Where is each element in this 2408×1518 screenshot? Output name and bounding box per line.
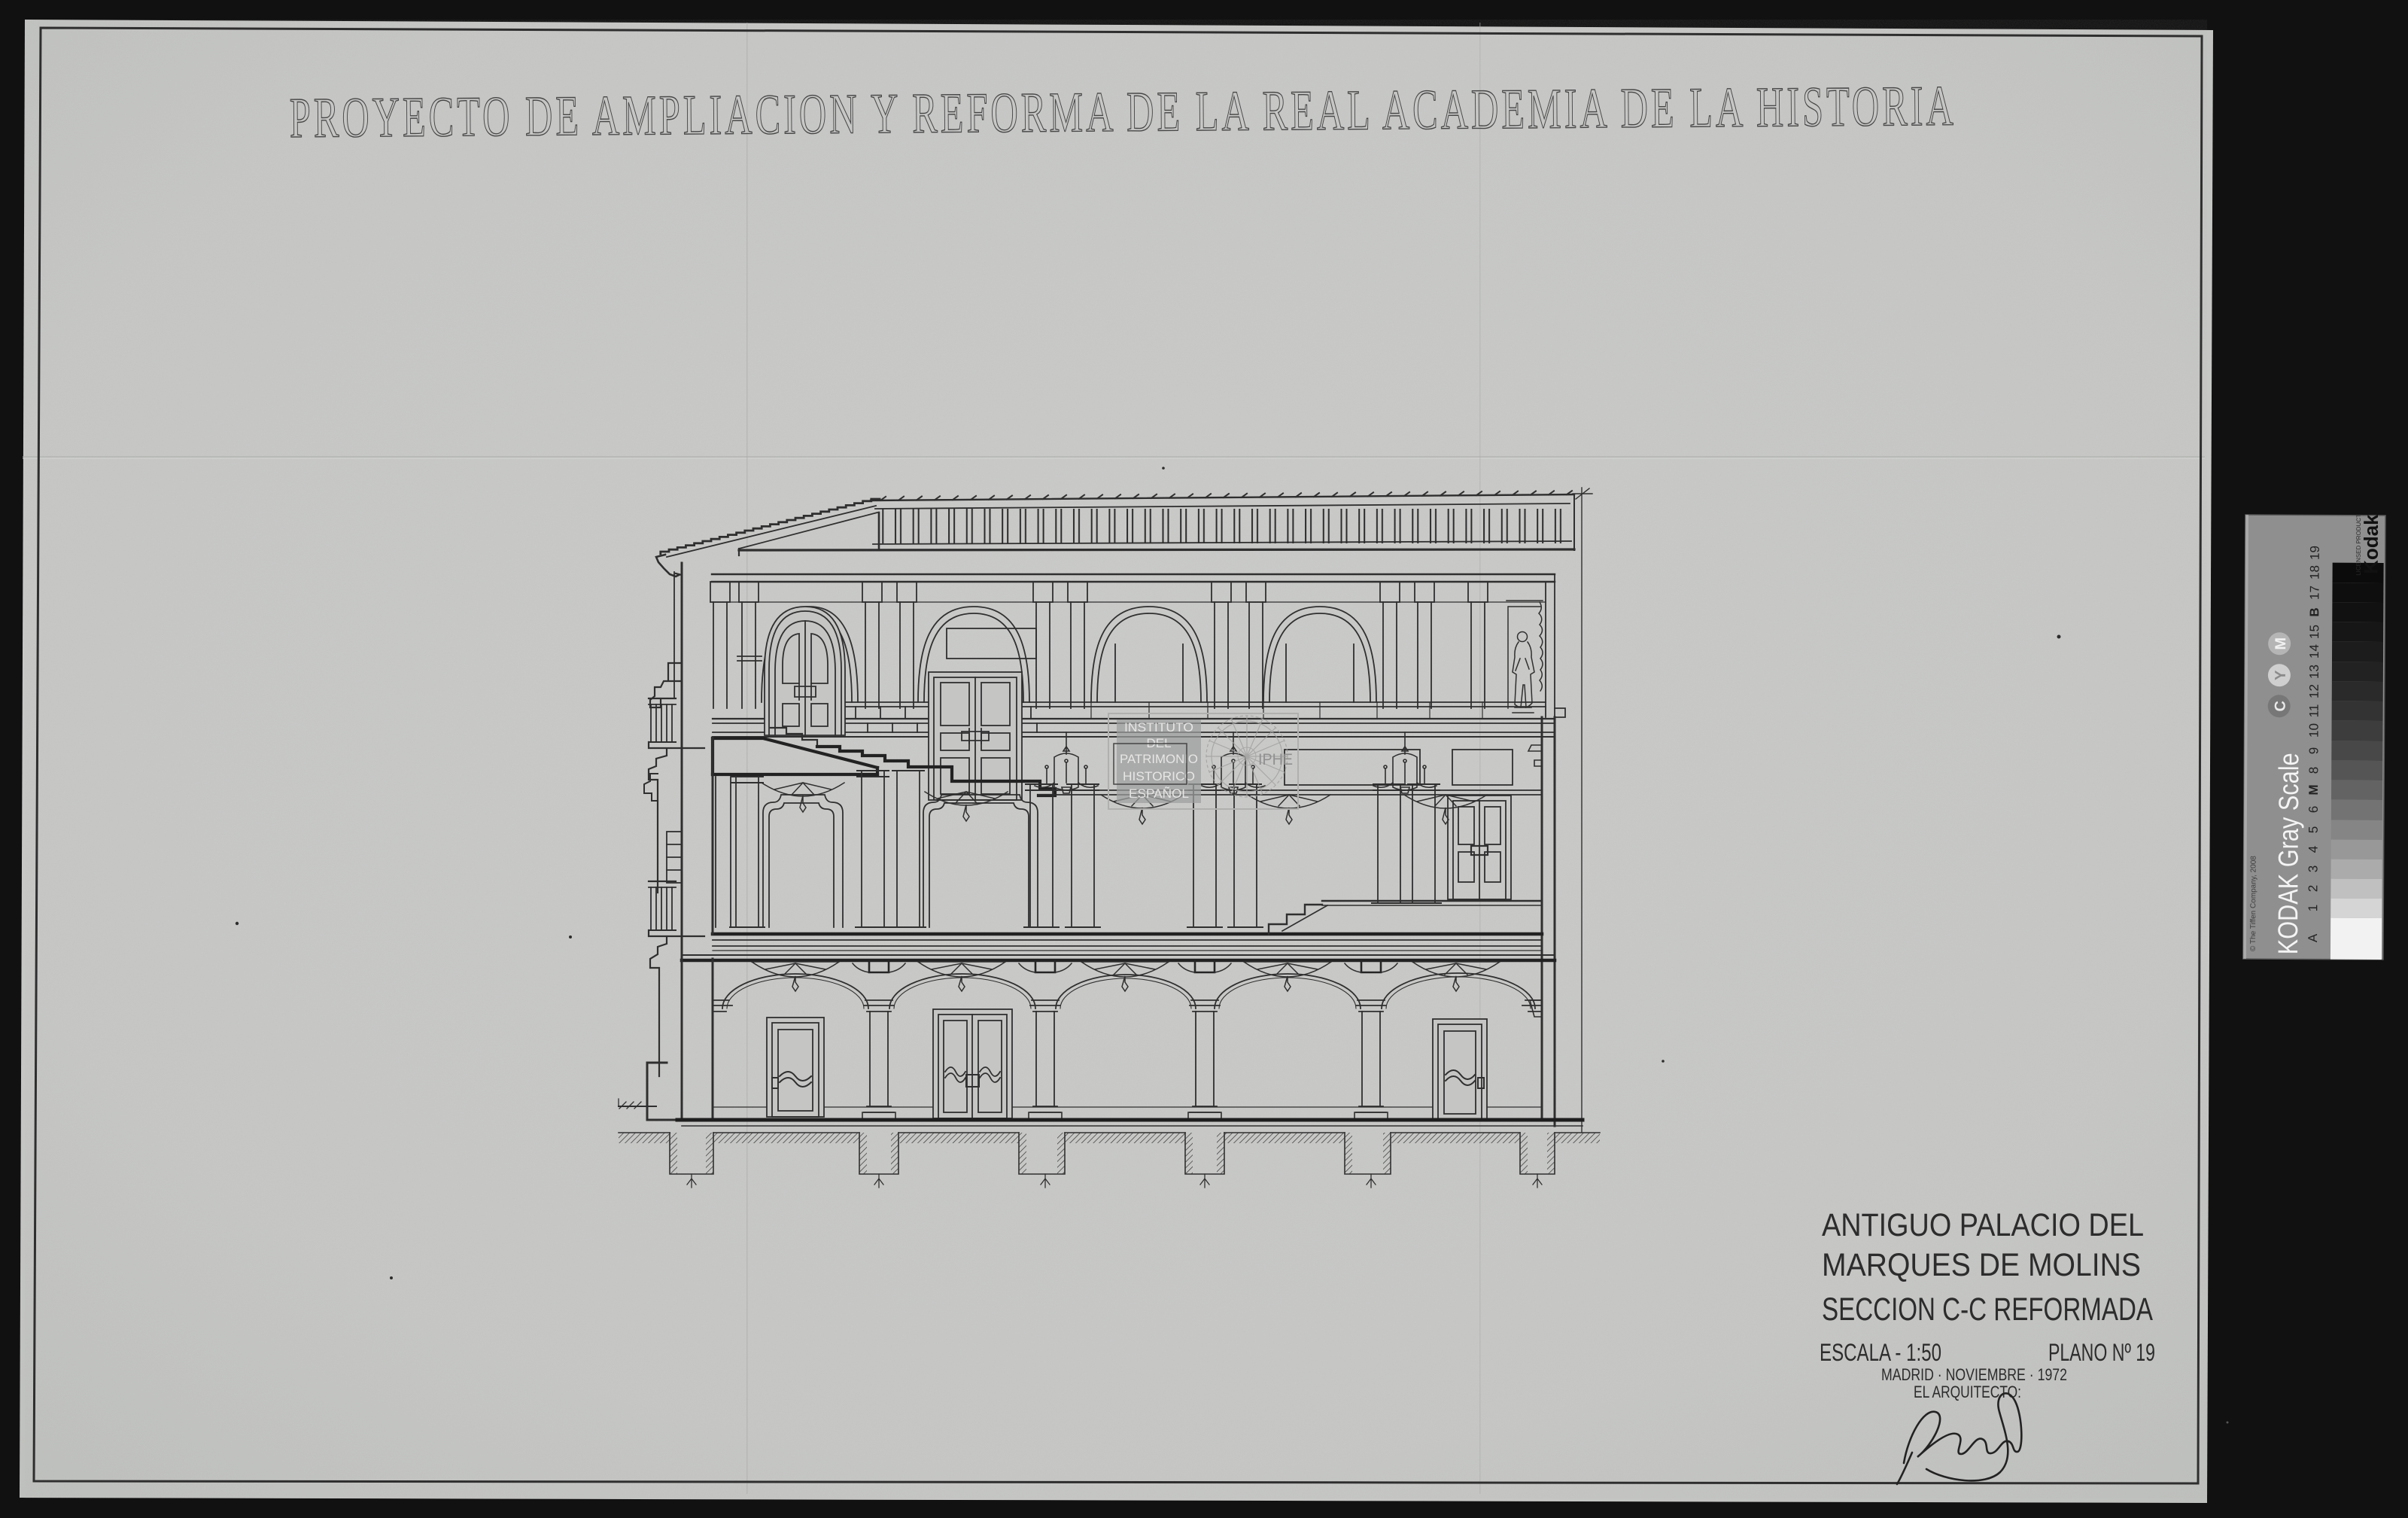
svg-text:11: 11	[2307, 704, 2321, 718]
svg-text:6: 6	[2306, 806, 2321, 814]
svg-text:Y: Y	[2273, 670, 2289, 680]
svg-text:A: A	[2306, 933, 2320, 942]
svg-text:13: 13	[2307, 665, 2321, 679]
svg-text:8: 8	[2306, 767, 2321, 774]
svg-text:ANTIGUO PALACIO DEL: ANTIGUO PALACIO DEL	[1822, 1207, 2144, 1243]
svg-text:PROYECTO DE AMPLIACION Y REFOR: PROYECTO DE AMPLIACION Y REFORMA DE LA R…	[290, 75, 1957, 150]
svg-text:10: 10	[2306, 723, 2321, 738]
svg-text:IPHE: IPHE	[1258, 751, 1293, 768]
svg-text:INSTITUTO: INSTITUTO	[1124, 720, 1193, 735]
svg-text:5: 5	[2306, 826, 2321, 834]
svg-text:Kodak: Kodak	[2360, 514, 2382, 574]
svg-text:ESCALA - 1:50: ESCALA - 1:50	[1820, 1339, 1941, 1366]
svg-text:18: 18	[2308, 565, 2322, 580]
svg-text:B: B	[2307, 607, 2321, 616]
svg-text:EL ARQUITECTO:: EL ARQUITECTO:	[1914, 1383, 2021, 1401]
svg-text:KODAK Gray Scale: KODAK Gray Scale	[2273, 753, 2304, 954]
svg-text:2: 2	[2306, 885, 2320, 893]
svg-text:MARQUES DE MOLINS: MARQUES DE MOLINS	[1822, 1247, 2141, 1283]
svg-text:15: 15	[2307, 625, 2321, 639]
svg-text:17: 17	[2307, 586, 2321, 600]
svg-text:3: 3	[2306, 865, 2321, 873]
svg-text:1: 1	[2306, 905, 2320, 912]
svg-text:LICENSED PRODUCT: LICENSED PRODUCT	[2355, 514, 2362, 576]
svg-text:HISTORICO: HISTORICO	[1123, 769, 1195, 783]
svg-text:M: M	[2273, 637, 2289, 650]
svg-text:ESPAÑOL: ESPAÑOL	[1129, 786, 1189, 801]
svg-text:4: 4	[2306, 846, 2321, 853]
svg-text:9: 9	[2306, 747, 2321, 755]
svg-text:PLANO Nº 19: PLANO Nº 19	[2048, 1339, 2155, 1366]
svg-text:MADRID · NOVIEMBRE · 1972: MADRID · NOVIEMBRE · 1972	[1881, 1365, 2067, 1384]
svg-text:C: C	[2273, 701, 2289, 712]
svg-text:19: 19	[2308, 546, 2322, 560]
svg-text:SECCION C-C REFORMADA: SECCION C-C REFORMADA	[1822, 1291, 2153, 1328]
svg-text:14: 14	[2307, 644, 2321, 659]
svg-text:12: 12	[2307, 684, 2321, 698]
svg-text:M: M	[2306, 784, 2321, 795]
svg-text:© The Tiffen Company, 2008: © The Tiffen Company, 2008	[2249, 856, 2258, 951]
